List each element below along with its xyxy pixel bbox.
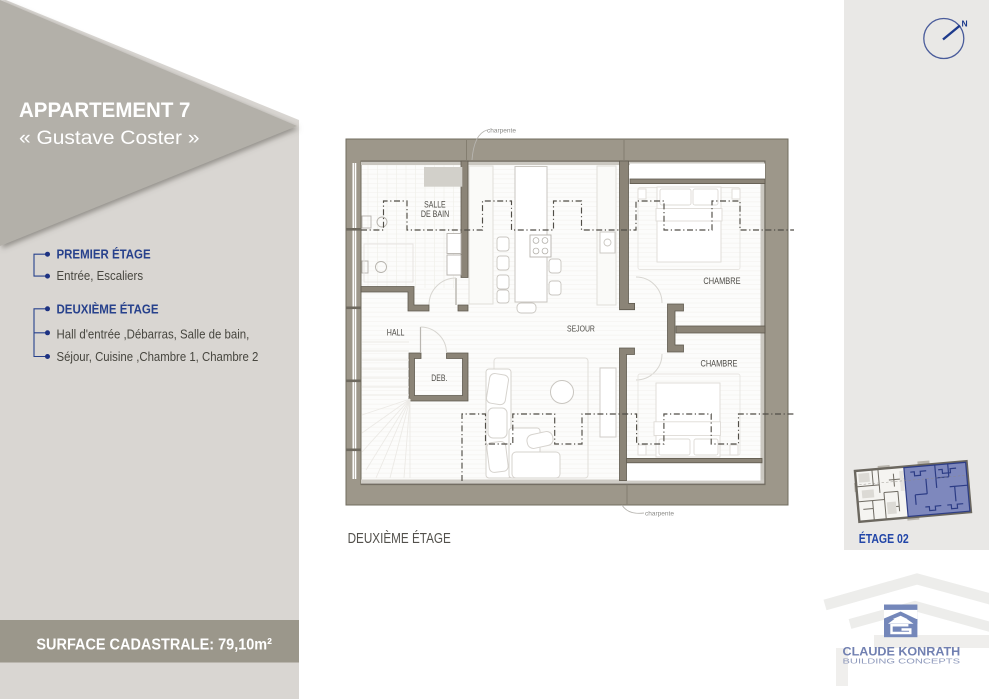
svg-text:charpente: charpente xyxy=(645,511,674,518)
svg-text:CHAMBRE: CHAMBRE xyxy=(703,276,740,287)
svg-text:HALL: HALL xyxy=(387,328,405,338)
svg-text:DEB.: DEB. xyxy=(431,373,447,383)
svg-text:DE BAIN: DE BAIN xyxy=(421,209,449,219)
svg-text:CHAMBRE: CHAMBRE xyxy=(701,359,738,370)
svg-text:charpente: charpente xyxy=(487,128,516,135)
svg-text:SEJOUR: SEJOUR xyxy=(567,324,595,334)
